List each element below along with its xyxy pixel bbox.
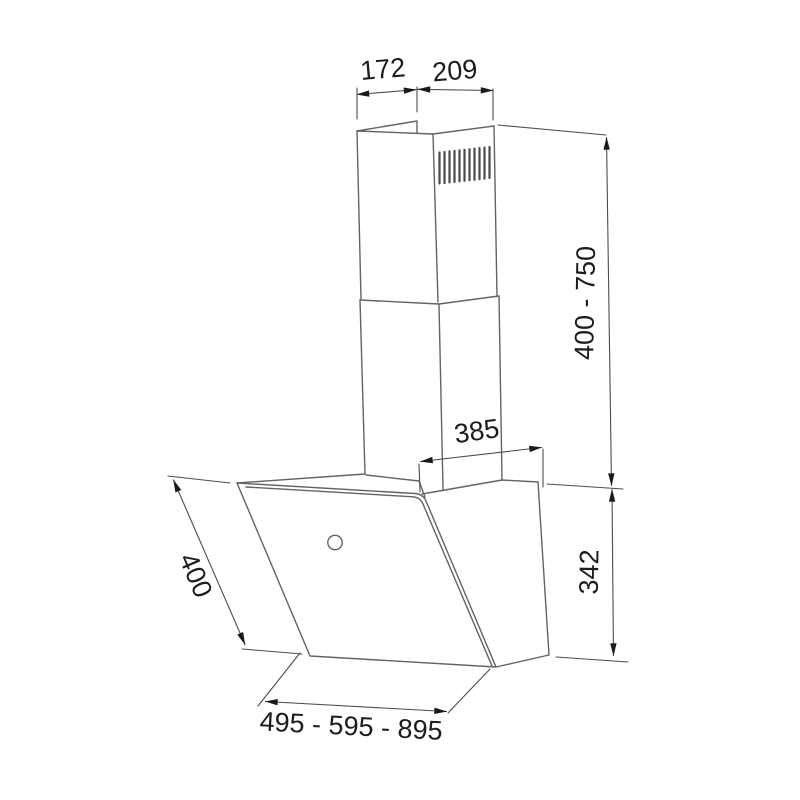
glass-panel-circle-detail	[328, 535, 342, 549]
chimney-right-edge-upper	[494, 126, 497, 296]
dim-label-hood-panel-depth: 400	[173, 549, 218, 602]
dim-label-chimney-top-width: 209	[431, 54, 479, 88]
dim-line-chimney-top-depth	[357, 90, 416, 95]
dimension-labels: 172 209 400 - 750 385 342 400 495 - 595 …	[173, 52, 604, 746]
dimension-annotations	[168, 87, 628, 713]
cooker-hood-dimension-diagram: 172 209 400 - 750 385 342 400 495 - 595 …	[0, 0, 800, 800]
glass-panel-thickness-line	[246, 487, 492, 666]
ext-width-right	[448, 669, 490, 713]
ext-385-left	[419, 464, 420, 492]
dim-line-chimney-height-range	[607, 138, 612, 486]
hood-geometry	[237, 121, 549, 667]
dim-line-hood-body-height	[612, 490, 614, 656]
ext-height-top	[498, 125, 606, 135]
chimney-middle-edge-upper	[433, 134, 438, 302]
hood-body	[237, 474, 549, 667]
chimney-middle-edge-lower	[439, 304, 443, 489]
chimney-top-front-rim	[357, 131, 433, 134]
hood-back-right-edge	[538, 482, 549, 655]
chimney-upper-section	[357, 121, 497, 302]
dim-label-hood-width-variants: 495 - 595 - 895	[259, 706, 443, 746]
hood-bottom-right-edge	[496, 655, 549, 667]
hood-top-back-edge-left	[237, 474, 365, 483]
chimney-top-right-rim	[433, 126, 494, 134]
dim-label-chimney-height-range: 400 - 750	[569, 246, 601, 361]
measure-lines	[174, 89, 614, 711]
dim-line-chimney-base-width	[421, 448, 542, 462]
technical-drawing-page: 172 209 400 - 750 385 342 400 495 - 595 …	[0, 0, 800, 800]
dim-label-chimney-base-width: 385	[452, 413, 501, 449]
ext-height-bottom	[556, 657, 628, 662]
hood-top-right-edge	[422, 480, 538, 494]
chimney-left-edge-lower	[360, 300, 365, 474]
dim-line-chimney-top-width	[418, 89, 493, 90]
ext-400-bottom	[242, 649, 302, 654]
dim-label-hood-body-height: 342	[574, 549, 605, 595]
chimney-left-edge-upper	[357, 131, 361, 299]
extension-lines	[168, 87, 628, 713]
dim-label-chimney-top-depth: 172	[359, 52, 407, 86]
ext-400-top	[168, 476, 230, 483]
ext-width-left	[258, 653, 300, 706]
vent-grille-icon	[440, 147, 490, 184]
glass-panel-outline	[237, 483, 496, 667]
chimney-telescopic-joint	[360, 296, 499, 304]
